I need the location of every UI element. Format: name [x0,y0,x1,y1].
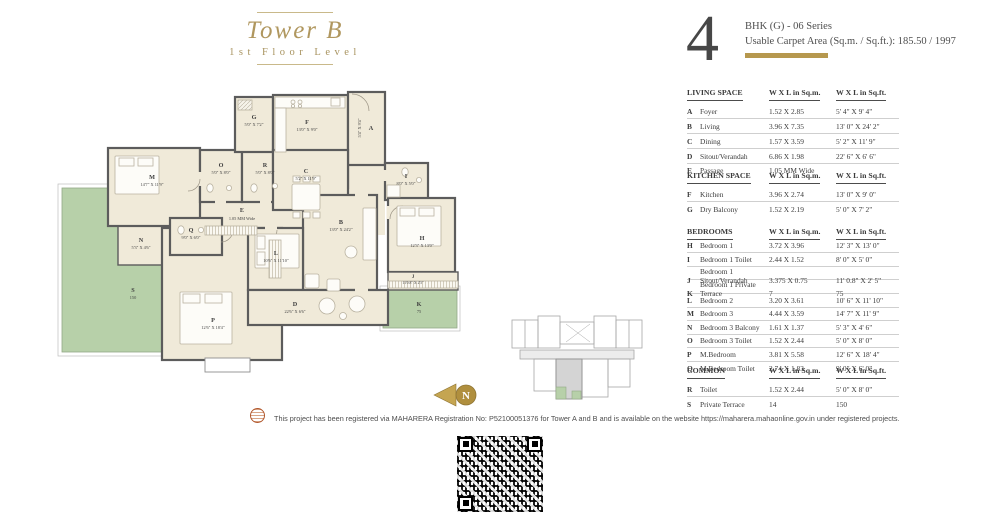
row-letter: O [687,336,700,347]
section-header: BEDROOMS [687,227,733,240]
row-sqft: 22' 6" X 6' 6" [836,152,899,163]
row-letter: C [687,137,700,148]
unit-carpet-area: Usable Carpet Area (Sq.m. / Sq.ft.): 185… [745,36,956,47]
table-row: S Private Terrace 14 150 [687,397,899,411]
row-letter: B [687,122,700,133]
disclaimer-text: This project has been registered via MAH… [274,414,994,423]
row-sqm: 1.57 X 3.59 [769,137,836,148]
row-label: Dry Balcony [700,205,769,216]
column-header-sqft: W X L in Sq.ft. [836,171,886,184]
row-sqft: 10' 6" X 11' 10" [836,296,899,307]
row-letter: J [687,276,700,287]
row-sqm: 3.20 X 3.61 [769,296,836,307]
section-header: LIVING SPACE [687,88,743,101]
table-row: I Bedroom 1 Toilet 2.44 X 1.52 8' 0" X 5… [687,253,899,267]
room-sitout-verandah [248,290,388,325]
row-label: Kitchen [700,190,769,201]
row-sqm: 1.52 X 2.85 [769,107,836,118]
row-sqft: 13' 0" X 24' 2" [836,122,899,133]
svg-text:K: K [417,301,422,308]
svg-text:14'7" X 11'9": 14'7" X 11'9" [140,182,163,187]
svg-text:8'0" X 5'0": 8'0" X 5'0" [397,181,416,186]
floor-level: 1st Floor Level [205,47,385,58]
qr-finder-icon [458,437,473,452]
row-sqm: 1.52 X 2.44 [769,385,836,396]
svg-text:22'6" X 6'6": 22'6" X 6'6" [284,309,305,314]
svg-text:5'3" X 4'6": 5'3" X 4'6" [132,245,151,250]
column-header-sqm: W X L in Sq.m. [769,227,820,240]
tower-name: Tower B [205,16,385,46]
svg-text:L: L [274,250,278,257]
bedrooms-table: BEDROOMS W X L in Sq.m. W X L in Sq.ft. … [687,227,899,375]
row-sqft: 5' 0" X 8' 0" [836,336,899,347]
svg-text:N: N [139,237,144,244]
table-row: R Toilet 1.52 X 2.44 5' 0" X 8' 0" [687,382,899,397]
entry-step [205,358,250,372]
row-sqft: 5' 0" X 8' 0" [836,385,899,396]
row-sqft: 5' 0" X 7' 2" [836,205,899,216]
row-letter: H [687,241,700,252]
rera-stamp-icon [250,408,265,423]
svg-text:B: B [339,219,343,226]
row-letter: D [687,152,700,163]
column-header-sqft: W X L in Sq.ft. [836,227,886,240]
svg-text:1.05 MM Wide: 1.05 MM Wide [229,216,255,221]
svg-text:11'0.8" X 2'5": 11'0.8" X 2'5" [402,281,424,285]
room-bedroom3-toilet [200,150,242,202]
north-label: N [462,390,470,402]
svg-text:G: G [252,114,257,121]
row-sqft: 11' 0.8" X 2' 5" [836,276,899,287]
svg-text:5'4" X 9'4": 5'4" X 9'4" [357,118,362,137]
svg-text:D: D [293,301,298,308]
table-row: C Dining 1.57 X 3.59 5' 2" X 11' 9" [687,134,899,149]
title-block: Tower B 1st Floor Level [205,12,385,65]
svg-text:E: E [240,207,244,214]
row-label: Bedroom 3 Toilet [700,336,769,347]
table-header: COMMON W X L in Sq.m. W X L in Sq.ft. [687,366,899,382]
table-row: J Bedroom 1 Sitout/Verandah 3.375 X 0.75… [687,267,899,281]
column-header-sqm: W X L in Sq.m. [769,366,820,379]
bedrooms-rows: H Bedroom 1 3.72 X 3.96 12' 3" X 13' 0" … [687,240,899,375]
common-table: COMMON W X L in Sq.m. W X L in Sq.ft. R … [687,366,899,411]
svg-text:F: F [305,119,309,126]
row-letter: M [687,309,700,320]
qr-finder-icon [458,496,473,511]
svg-text:P: P [211,317,215,324]
section-header: KITCHEN SPACE [687,171,751,184]
svg-text:A: A [369,125,374,132]
row-label: Bedroom 3 Balcony [700,323,769,334]
svg-text:M: M [149,174,155,181]
svg-text:75: 75 [417,309,421,314]
row-label: Foyer [700,107,769,118]
row-sqm: 1.61 X 1.37 [769,323,836,334]
row-sqft: 12' 3" X 13' 0" [836,241,899,252]
row-label: Bedroom 1 [700,241,769,252]
qr-code [457,436,543,512]
svg-text:5'0" X 8'0": 5'0" X 8'0" [212,170,231,175]
svg-text:R: R [263,162,268,169]
row-sqm: 14 [769,400,836,411]
svg-text:5'0" X 8'0": 5'0" X 8'0" [256,170,275,175]
column-header-sqm: W X L in Sq.m. [769,171,820,184]
row-letter: F [687,190,700,201]
table-header: LIVING SPACE W X L in Sq.m. W X L in Sq.… [687,88,899,104]
svg-text:150: 150 [130,295,136,300]
row-sqm: 2.44 X 1.52 [769,255,836,266]
bottom-rule [257,64,333,65]
row-sqm: 6.86 X 1.98 [769,152,836,163]
row-sqm: 3.375 X 0.75 [769,276,836,287]
kitchen-space-table: KITCHEN SPACE W X L in Sq.m. W X L in Sq… [687,171,899,216]
row-letter: I [687,255,700,266]
svg-text:S: S [131,287,135,294]
section-header: COMMON [687,366,725,379]
table-row: O Bedroom 3 Toilet 1.52 X 2.44 5' 0" X 8… [687,335,899,349]
qr-finder-icon [527,437,542,452]
svg-text:5'2" X 11'9": 5'2" X 11'9" [296,176,317,181]
svg-text:12'3" X 13'0": 12'3" X 13'0" [410,243,433,248]
table-row: M Bedroom 3 4.44 X 3.59 14' 7" X 11' 9" [687,308,899,322]
row-sqft: 5' 2" X 11' 9" [836,137,899,148]
svg-text:13'0" X 9'0": 13'0" X 9'0" [296,127,317,132]
row-label: M.Bedroom [700,350,769,361]
unit-number: 4 [686,6,719,72]
kitchen-space-rows: F Kitchen 3.96 X 2.74 13' 0" X 9' 0" G D… [687,187,899,216]
north-indicator: N [432,381,482,409]
row-letter: S [687,400,700,411]
row-label: Toilet [700,385,769,396]
table-header: KITCHEN SPACE W X L in Sq.m. W X L in Sq… [687,171,899,187]
column-header-sqm: W X L in Sq.m. [769,88,820,101]
table-row: G Dry Balcony 1.52 X 2.19 5' 0" X 7' 2" [687,202,899,216]
svg-text:O: O [219,162,224,169]
row-letter: P [687,350,700,361]
row-letter: G [687,205,700,216]
row-letter: R [687,385,700,396]
table-row: D Sitout/Verandah 6.86 X 1.98 22' 6" X 6… [687,149,899,164]
living-space-rows: A Foyer 1.52 X 2.85 5' 4" X 9' 4" B Livi… [687,104,899,177]
table-header: BEDROOMS W X L in Sq.m. W X L in Sq.ft. [687,227,899,240]
gold-underline [745,53,828,58]
row-label: Private Terrace [700,400,769,411]
common-rows: R Toilet 1.52 X 2.44 5' 0" X 8' 0" S Pri… [687,382,899,411]
table-row: F Kitchen 3.96 X 2.74 13' 0" X 9' 0" [687,187,899,202]
row-label: Bedroom 2 [700,296,769,307]
row-sqft: 8' 0" X 5' 0" [836,255,899,266]
table-row: N Bedroom 3 Balcony 1.61 X 1.37 5' 3" X … [687,321,899,335]
compass-arrow-icon [434,384,456,406]
svg-text:12'6" X 18'4": 12'6" X 18'4" [201,325,224,330]
row-label: Bedroom 3 [700,309,769,320]
column-header-sqft: W X L in Sq.ft. [836,88,886,101]
svg-text:10'6" X 11'10": 10'6" X 11'10" [263,258,288,263]
row-sqft: 5' 4" X 9' 4" [836,107,899,118]
svg-text:13'0" X 24'2": 13'0" X 24'2" [329,227,352,232]
row-sqm: 1.52 X 2.44 [769,336,836,347]
room-foyer [348,92,385,165]
row-sqft: 12' 6" X 18' 4" [836,350,899,361]
key-plan [502,306,654,408]
top-rule [257,12,333,13]
row-sqm: 3.72 X 3.96 [769,241,836,252]
table-row: L Bedroom 2 3.20 X 3.61 10' 6" X 11' 10" [687,294,899,308]
row-sqm: 3.96 X 2.74 [769,190,836,201]
table-row: H Bedroom 1 3.72 X 3.96 12' 3" X 13' 0" [687,240,899,254]
row-sqm: 3.96 X 7.35 [769,122,836,133]
table-row: P M.Bedroom 3.81 X 5.58 12' 6" X 18' 4" [687,348,899,362]
table-row: A Foyer 1.52 X 2.85 5' 4" X 9' 4" [687,104,899,119]
table-row: B Living 3.96 X 7.35 13' 0" X 24' 2" [687,119,899,134]
row-label: Sitout/Verandah [700,152,769,163]
row-sqft: 5' 3" X 4' 6" [836,323,899,334]
row-sqft: 14' 7" X 11' 9" [836,309,899,320]
row-label: Bedroom 1 Toilet [700,255,769,266]
row-sqm: 3.81 X 5.58 [769,350,836,361]
row-sqm: 1.52 X 2.19 [769,205,836,216]
row-sqft: 13' 0" X 9' 0" [836,190,899,201]
row-sqft: 150 [836,400,899,411]
unit-series: BHK (G) - 06 Series [745,21,832,32]
living-space-table: LIVING SPACE W X L in Sq.m. W X L in Sq.… [687,88,899,177]
floor-plan: M14'7" X 11'9" O5'0" X 8'0" R5'0" X 8'0"… [55,80,465,410]
row-label: Dining [700,137,769,148]
row-sqm: 4.44 X 3.59 [769,309,836,320]
svg-text:C: C [304,168,308,175]
column-header-sqft: W X L in Sq.ft. [836,366,886,379]
svg-text:5'0" X 7'2": 5'0" X 7'2" [245,122,264,127]
svg-text:Q: Q [189,227,194,234]
svg-text:9'0" X 6'0": 9'0" X 6'0" [182,235,201,240]
row-letter: L [687,296,700,307]
page: Tower B 1st Floor Level 4 BHK (G) - 06 S… [0,0,1000,516]
svg-text:H: H [420,235,425,242]
row-letter: N [687,323,700,334]
row-letter: A [687,107,700,118]
row-label: Living [700,122,769,133]
